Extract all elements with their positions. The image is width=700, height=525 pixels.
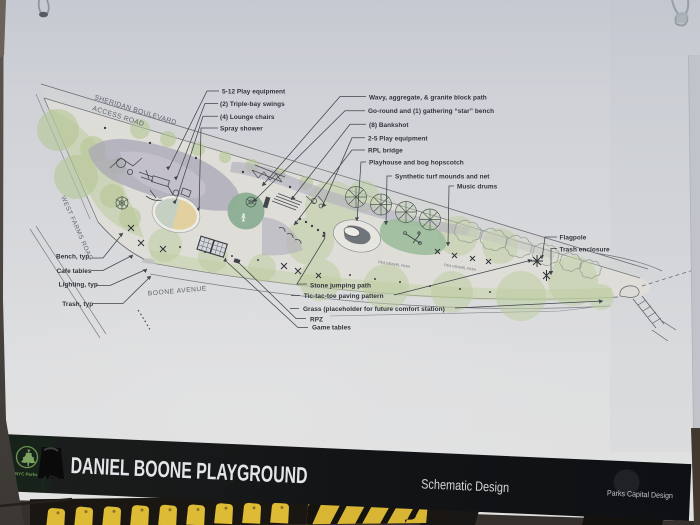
- svg-text:Wavy, aggregate, & granite blo: Wavy, aggregate, & granite block path: [369, 94, 487, 101]
- svg-text:Spray shower: Spray shower: [220, 125, 263, 132]
- svg-text:Lighting, typ: Lighting, typ: [59, 282, 98, 289]
- svg-text:Go-round and (1) gathering “st: Go-round and (1) gathering “star” bench: [368, 108, 494, 115]
- svg-text:Stone jumping path: Stone jumping path: [310, 283, 371, 290]
- svg-text:Synthetic turf mounds and net: Synthetic turf mounds and net: [395, 174, 490, 181]
- svg-text:2-5 Play equipment: 2-5 Play equipment: [368, 135, 428, 142]
- svg-text:RPL bridge: RPL bridge: [368, 148, 403, 155]
- svg-text:Trash, typ: Trash, typ: [62, 301, 93, 308]
- svg-text:Grass (placeholder for future: Grass (placeholder for future comfort st…: [303, 306, 445, 313]
- svg-text:Playhouse and bog hopscotch: Playhouse and bog hopscotch: [369, 160, 464, 167]
- svg-text:Flagpole: Flagpole: [560, 234, 587, 241]
- svg-text:(2) Triple-bay swings: (2) Triple-bay swings: [220, 101, 285, 108]
- svg-text:Trash enclosure: Trash enclosure: [560, 246, 610, 253]
- svg-text:5-12 Play equipment: 5-12 Play equipment: [222, 89, 286, 96]
- svg-text:Game tables: Game tables: [312, 325, 351, 332]
- svg-text:Music drums: Music drums: [457, 183, 498, 190]
- svg-text:RPZ: RPZ: [310, 317, 323, 324]
- svg-text:(4) Lounge chairs: (4) Lounge chairs: [220, 114, 275, 121]
- svg-text:NYC Parks: NYC Parks: [15, 471, 38, 477]
- svg-text:Tic-tac-toe paving pattern: Tic-tac-toe paving pattern: [304, 293, 384, 300]
- svg-text:(8) Bankshot: (8) Bankshot: [369, 122, 409, 129]
- svg-text:Cafe tables: Cafe tables: [57, 268, 92, 275]
